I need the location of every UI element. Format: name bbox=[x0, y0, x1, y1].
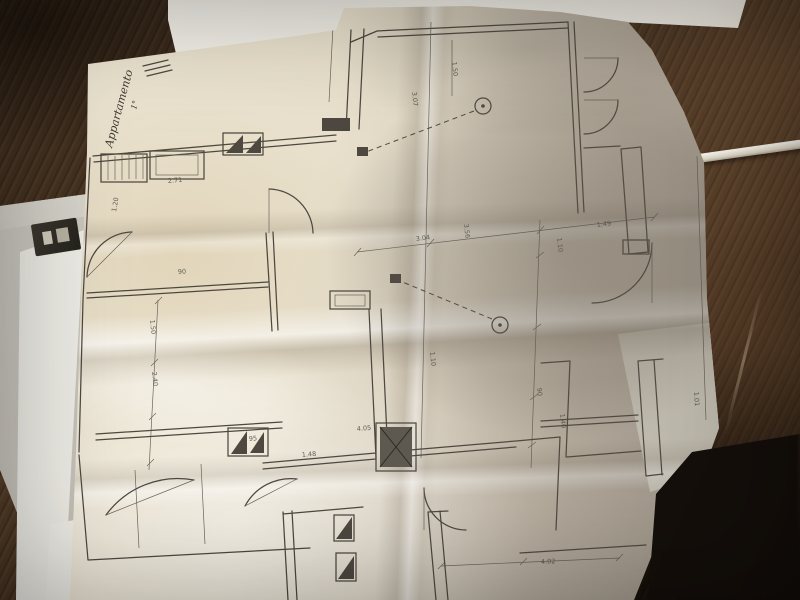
photo-scene: Appartamento 1° 240,76 2.71901.203.041.4… bbox=[0, 0, 800, 600]
clip-mark bbox=[56, 227, 70, 243]
clip-mark bbox=[42, 231, 53, 245]
